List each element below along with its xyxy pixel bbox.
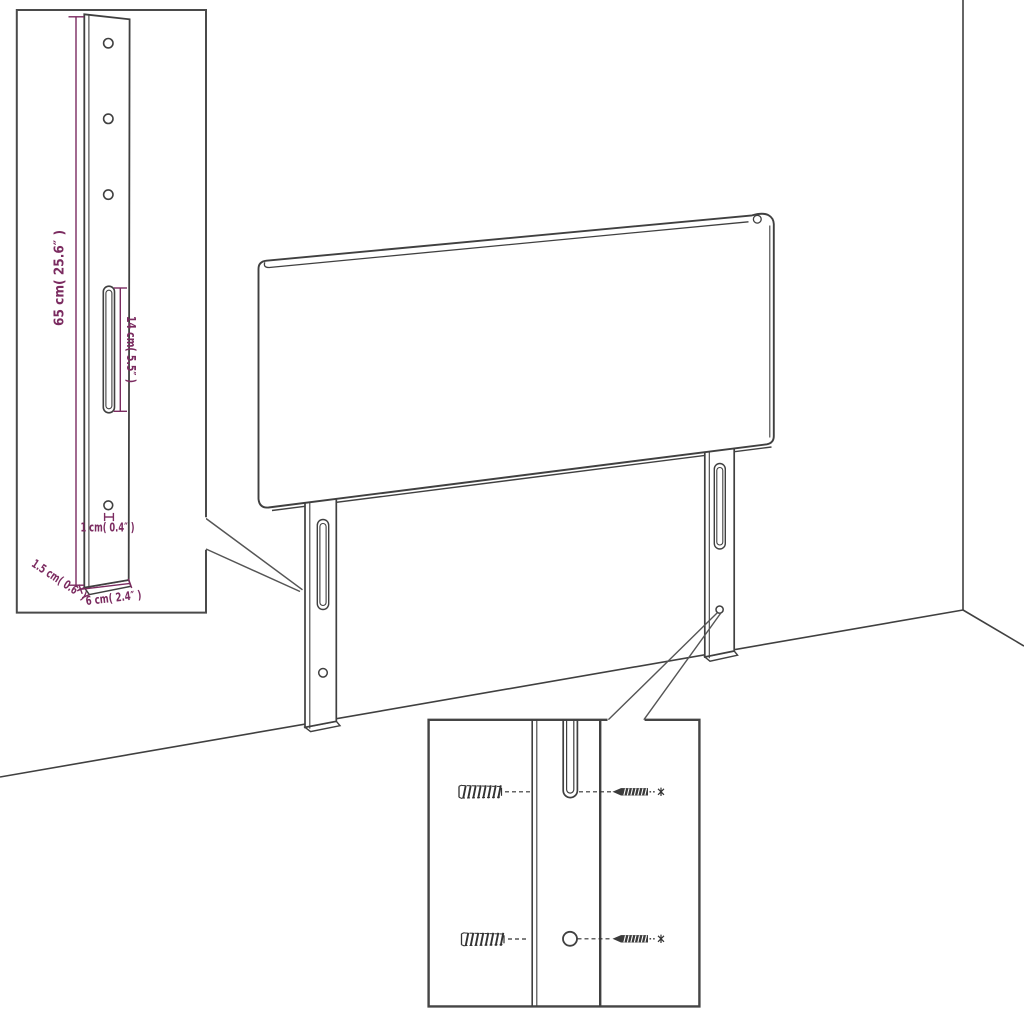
- dim-slot-label: 14 cm( 5.5″ ): [124, 316, 139, 383]
- leg-detail-callout-wedge: [206, 519, 303, 592]
- dim-hole-label: 1 cm( 0.4″ ): [81, 521, 135, 535]
- callout-line-upper: [206, 519, 303, 590]
- callout-line-lower: [206, 549, 300, 592]
- headboard-assembly-diagram: 65 cm( 25.6″ ) 14 cm( 5.5″ ) 1 cm( 0.4″ …: [0, 0, 1024, 1024]
- inset-leg-drawing: [84, 14, 131, 594]
- headboard-outline: [259, 214, 774, 508]
- mounting-detail-callout-wedge: [608, 613, 720, 720]
- headboard-top-right-curl: [753, 215, 761, 223]
- floor-line-right: [963, 610, 1024, 646]
- mounting-detail-inset: [429, 720, 700, 1007]
- callout-line-left: [608, 613, 717, 720]
- headboard-panel: [259, 214, 774, 508]
- dim-height-label: 65 cm( 25.6″ ): [53, 230, 68, 326]
- headboard-left-leg: [305, 468, 340, 732]
- callout-line-right: [644, 613, 721, 719]
- assembly-diagram-canvas: 65 cm( 25.6″ ) 14 cm( 5.5″ ) 1 cm( 0.4″ …: [0, 0, 1024, 1024]
- leg-detail-inset: 65 cm( 25.6″ ) 14 cm( 5.5″ ) 1 cm( 0.4″ …: [17, 10, 206, 613]
